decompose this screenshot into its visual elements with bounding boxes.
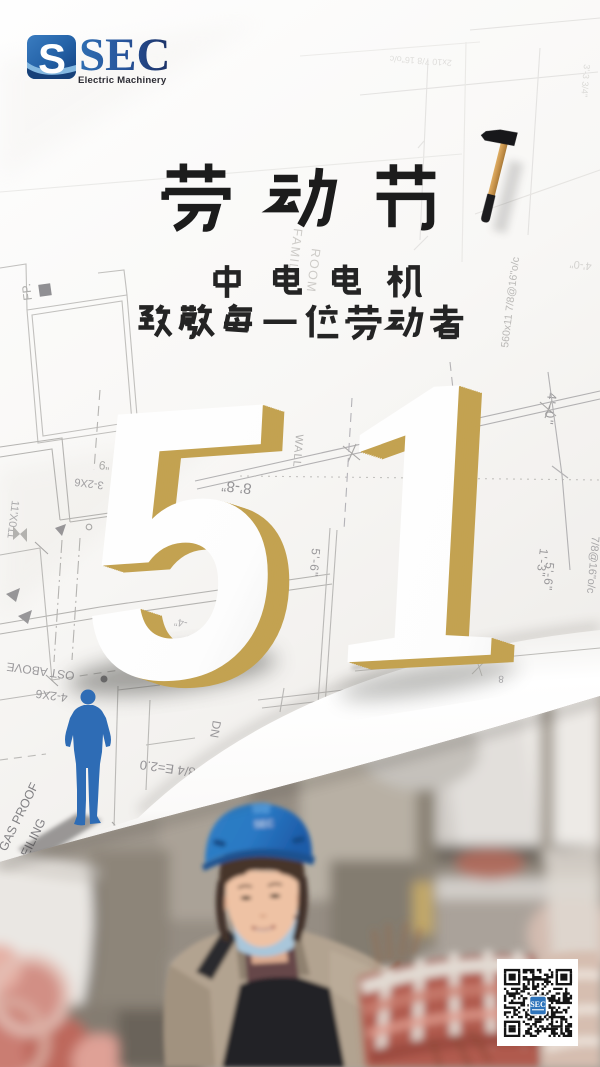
svg-text:5: 5: [73, 319, 291, 767]
svg-text:Electric Machinery: Electric Machinery: [78, 75, 167, 86]
svg-text:SEC: SEC: [79, 29, 170, 81]
svg-text:5'-6": 5'-6": [306, 548, 322, 578]
svg-text:FP.: FP.: [19, 283, 35, 302]
svg-text:SEC: SEC: [530, 1000, 546, 1009]
svg-text:SEC: SEC: [254, 818, 274, 830]
svg-text:S: S: [38, 35, 66, 82]
